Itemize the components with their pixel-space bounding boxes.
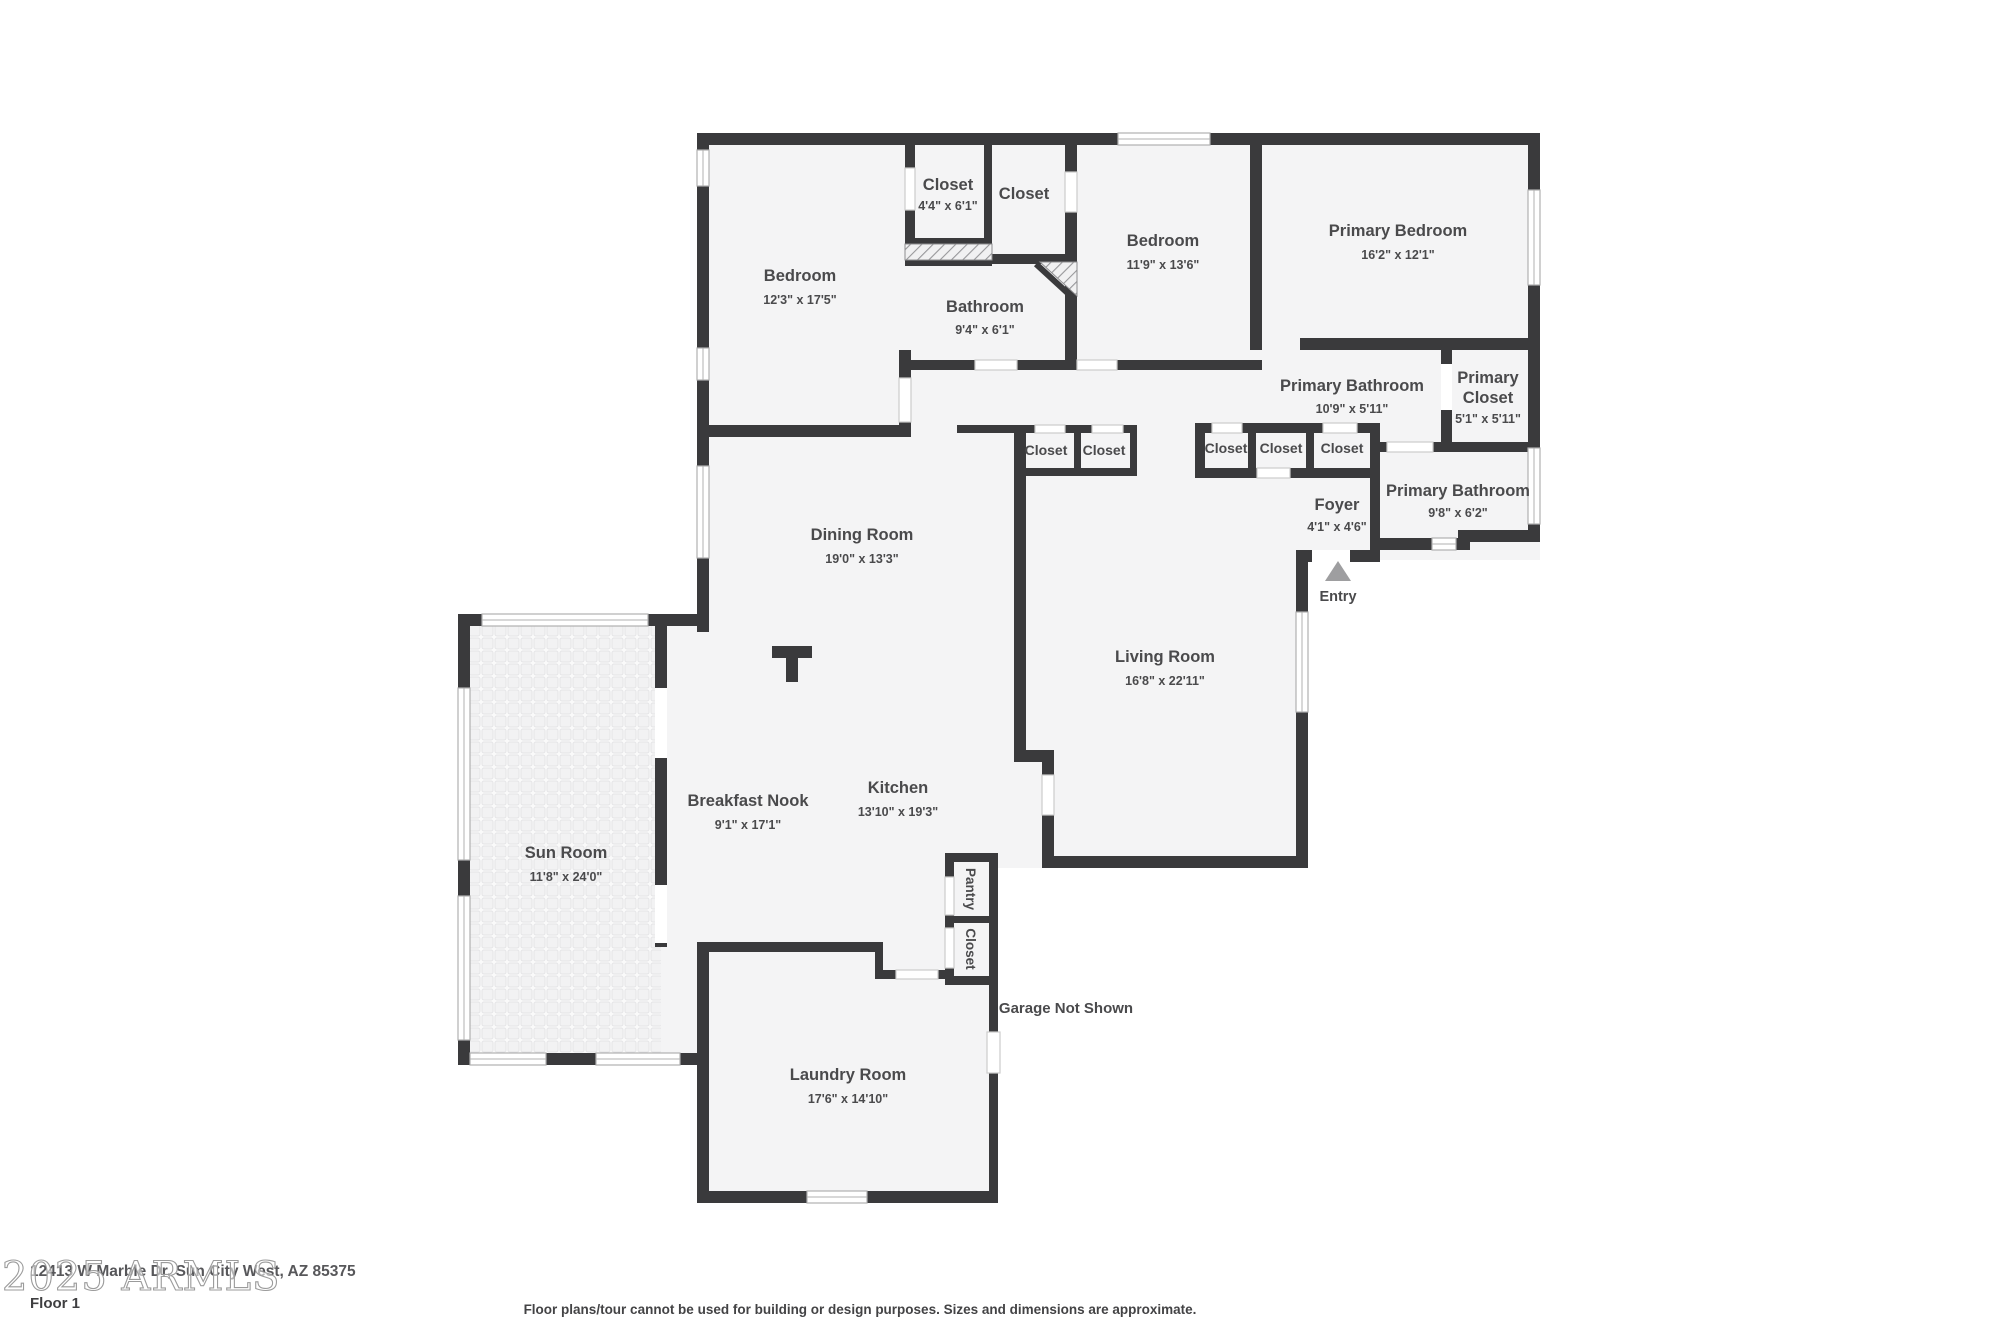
door-opening [1387, 442, 1433, 452]
room-label-kitchen: Kitchen [868, 779, 929, 797]
room-dims-kitchen: 13'10" x 19'3" [858, 805, 938, 819]
room-label-closet-vertical: Closet [963, 928, 978, 970]
floor-number-label: Floor 1 [30, 1295, 80, 1312]
room-dims-bedroom-1: 12'3" x 17'5" [763, 293, 836, 307]
room-label-primary-bedroom: Primary Bedroom [1329, 222, 1467, 240]
wall-opening [1441, 364, 1452, 410]
door-opening [1323, 423, 1357, 433]
room-label-primary-closet-line2: Closet [1463, 389, 1514, 407]
room-dims-primary-closet: 5'1" x 5'11" [1455, 412, 1521, 426]
floor-sun-room-tile [464, 620, 661, 1059]
garage-door-opening [987, 1032, 1000, 1073]
room-dims-laundry-room: 17'6" x 14'10" [808, 1092, 888, 1106]
door-opening [1065, 172, 1077, 212]
room-label-hall-closet-2: Closet [1083, 442, 1126, 458]
room-dims-dining-room: 19'0" x 13'3" [825, 552, 898, 566]
room-label-bedroom-2: Bedroom [1127, 232, 1199, 250]
wall [1042, 856, 1308, 868]
room-label-foyer-closet-3: Closet [1321, 440, 1364, 456]
room-dims-primary-bathroom-1: 10'9" x 5'11" [1316, 402, 1389, 416]
room-dims-bedroom-2: 11'9" x 13'6" [1127, 258, 1200, 272]
armls-watermark: 2025 ARMLS [2, 1254, 280, 1300]
room-dims-primary-bedroom: 16'2" x 12'1" [1361, 248, 1434, 262]
room-label-primary-closet-line1: Primary [1457, 369, 1519, 387]
door-opening [1035, 425, 1065, 433]
wall [989, 853, 998, 985]
wall [989, 1073, 998, 1203]
room-label-laundry-room: Laundry Room [790, 1066, 906, 1084]
room-dims-foyer: 4'1" x 4'6" [1307, 520, 1367, 534]
room-label-foyer-closet-2: Closet [1260, 440, 1303, 456]
door-opening [945, 928, 954, 968]
wall [772, 646, 812, 658]
wall-opening [655, 688, 667, 758]
wall [1300, 338, 1540, 350]
wall [1065, 133, 1077, 370]
room-dims-breakfast-nook: 9'1" x 17'1" [715, 818, 782, 832]
door-opening [1212, 423, 1242, 433]
wall [1458, 530, 1540, 542]
wall [786, 658, 798, 682]
wall [697, 942, 709, 1203]
wall [1296, 560, 1308, 868]
door-opening [896, 970, 938, 979]
wall [905, 260, 992, 266]
wall [697, 425, 911, 437]
room-label-dining-room: Dining Room [811, 526, 914, 544]
door-opening [945, 877, 954, 915]
room-dims-closet-1: 4'4" x 6'1" [918, 199, 978, 213]
room-label-foyer: Foyer [1315, 496, 1361, 514]
room-label-closet-1: Closet [923, 176, 974, 194]
room-dims-primary-bathroom-2: 9'8" x 6'2" [1428, 506, 1488, 520]
door-opening [975, 360, 1017, 370]
room-dims-living-room: 16'8" x 22'11" [1125, 674, 1205, 688]
wall [989, 985, 998, 1032]
room-label-closet-2: Closet [999, 185, 1050, 203]
floor-areas [464, 133, 1540, 1197]
room-dims-bathroom: 9'4" x 6'1" [955, 323, 1015, 337]
floor-plan-drawing: Bedroom 12'3" x 17'5" Closet 4'4" x 6'1"… [0, 0, 2000, 1333]
room-label-bedroom-1: Bedroom [764, 267, 836, 285]
wall [905, 238, 992, 244]
wall [1250, 133, 1262, 350]
room-dims-sun-room: 11'8" x 24'0" [530, 870, 603, 884]
room-label-primary-bathroom-1: Primary Bathroom [1280, 377, 1424, 395]
room-label-hall-closet-1: Closet [1025, 442, 1068, 458]
wall [697, 942, 883, 952]
room-label-foyer-closet-1: Closet [1205, 440, 1248, 456]
door-opening [899, 378, 911, 422]
entry-arrow-icon [1325, 561, 1351, 581]
footer: 12413 W Marble Dr, Sun City West, AZ 853… [2, 1254, 1196, 1317]
wall [1014, 433, 1026, 762]
room-label-primary-bathroom-2: Primary Bathroom [1386, 482, 1530, 500]
floor-plan-page: Bedroom 12'3" x 17'5" Closet 4'4" x 6'1"… [0, 0, 2000, 1333]
door-opening [905, 168, 915, 210]
door-opening [1092, 425, 1123, 433]
room-label-sun-room: Sun Room [525, 844, 608, 862]
wall-opening [655, 885, 667, 943]
door-opening [1042, 775, 1054, 815]
disclaimer-text: Floor plans/tour cannot be used for buil… [524, 1302, 1197, 1317]
room-label-living-room: Living Room [1115, 648, 1215, 666]
garage-note-label: Garage Not Shown [999, 1000, 1133, 1017]
room-label-pantry: Pantry [963, 868, 978, 911]
entry-label: Entry [1319, 589, 1356, 605]
door-opening [1257, 468, 1290, 478]
room-label-breakfast-nook: Breakfast Nook [687, 792, 809, 810]
door-opening [1077, 360, 1117, 370]
wall [1014, 468, 1137, 476]
entry-opening [1312, 550, 1350, 562]
room-label-bathroom: Bathroom [946, 298, 1024, 316]
hatch-strip [905, 244, 992, 260]
